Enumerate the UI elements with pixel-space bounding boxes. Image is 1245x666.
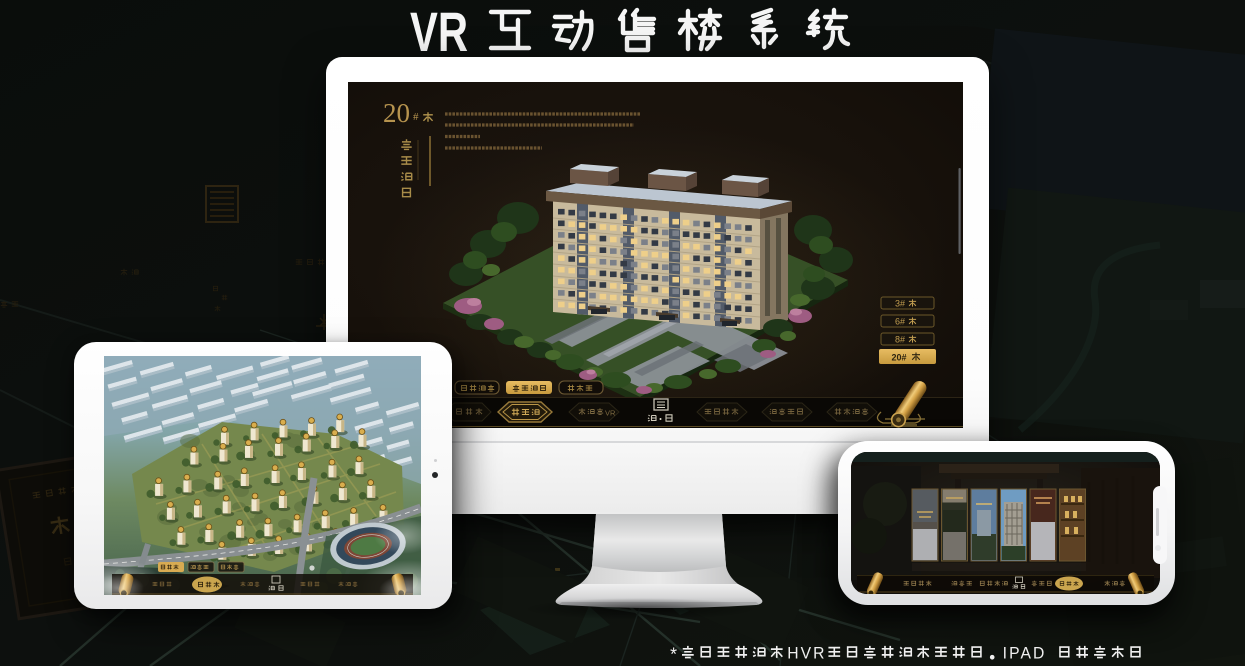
svg-text:8#: 8# <box>895 335 905 345</box>
svg-text:IPAD: IPAD <box>1003 645 1047 662</box>
svg-text:*: * <box>670 644 677 664</box>
svg-text:HVR: HVR <box>787 645 826 662</box>
svg-text:3#: 3# <box>895 299 905 309</box>
svg-text:6#: 6# <box>895 317 905 327</box>
svg-text:20#: 20# <box>891 353 906 363</box>
svg-text:20: 20 <box>383 98 410 128</box>
svg-text:VR: VR <box>605 409 616 418</box>
svg-text:#: # <box>413 111 419 123</box>
svg-text:VR: VR <box>410 2 468 58</box>
